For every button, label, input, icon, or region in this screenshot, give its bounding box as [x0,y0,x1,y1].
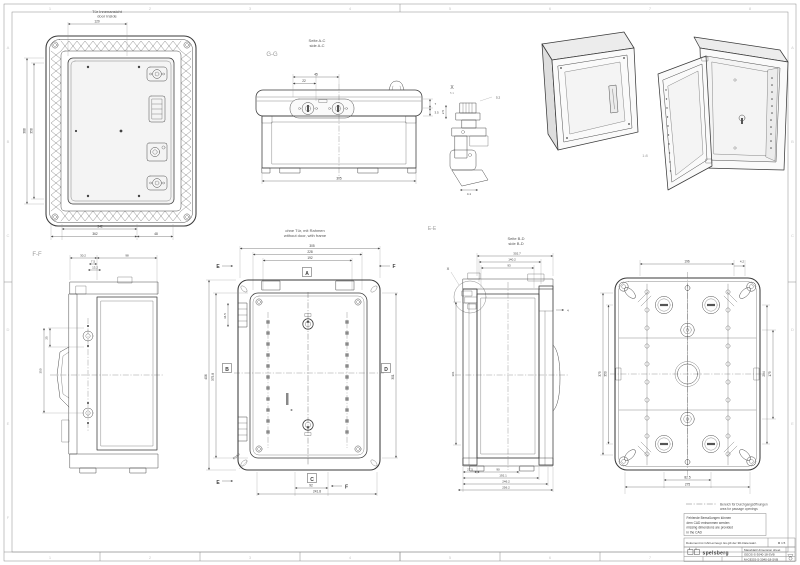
dim-label: 140.2 [508,258,516,262]
dim-label: 48 [154,232,158,236]
dim-label: 228 [307,250,313,254]
iso-scale-label: 1:8 [642,153,648,158]
zone-row: D [7,327,10,332]
dim-label: 388 [23,128,27,134]
title-block: Dokument ist CAD-erzeugt. Es gilt der 3D… [684,538,795,562]
dim-label: 93 [507,264,511,268]
dim-label: 275 [685,483,691,487]
dim-label: 4 [567,309,569,313]
dim-label: 2.5 [441,110,445,115]
zone-col: 4 [349,555,352,560]
view-title-en: side A-C [309,43,324,48]
view-door-inside: Tür Innenansicht door inside 120 388 358… [23,9,197,240]
dim-label: 305 [336,177,342,181]
dim-label: 301 [391,374,395,380]
zone-row: C [7,233,10,238]
marker-d: D [384,367,388,373]
dim-label: 82.5 [684,476,690,480]
doc-note: Dokument ist CAD-erzeugt. Es gilt der 3D… [686,541,757,545]
section-label: F-F [32,252,42,258]
zone-row: B [791,139,794,144]
cut-label-e: E [216,264,220,270]
dim-label: 3.5 [435,111,440,115]
zone-row: A [791,45,794,50]
dim-label: 350 [604,371,608,377]
dim-label: 98 [125,254,129,258]
note-line: Fehlende Bemaßungen können [687,516,732,520]
view-title-en: side B-D [508,241,523,246]
dim-label: 342 [97,225,103,229]
zone-col: 4 [349,6,352,11]
note-box: Fehlende Bemaßungen können dem CAD entno… [684,514,766,536]
dim-label: 301 [451,371,455,376]
cut-label-e: E [216,480,220,486]
legend-text-de: Bereich für Durchgangsöffnungen [720,503,768,507]
cut-label-f: F [392,264,395,270]
dim-label: 192 [307,256,313,260]
drawing-number: M-GEOS-S-3040-18-SVB [744,557,778,561]
dim-label: 196 [684,260,690,264]
view-back: 196 4.2 375 350 254 175 82.5 275 [598,260,776,495]
zone-col: 7 [649,6,652,11]
note-line: dem CAD entnommen werden [687,521,730,525]
detail-scale: 5:1 [450,91,455,95]
zone-row: C [791,233,794,238]
zone-col: 1 [49,6,52,11]
dim-label: 34.5 [223,313,227,319]
view-detail-x: X 5:1 2.5 5.2 4.1 [441,85,501,196]
dim-label: 4.2 [740,260,745,264]
dim-label: 5.2 [496,96,501,100]
legend-text-en: area for passage openings [720,507,758,511]
zone-col: 2 [149,6,152,11]
dim-label: 45 [314,73,318,77]
note-line: in the CAD [687,530,703,534]
dim-label: 192.1 [499,474,507,478]
dim-label: 362 [92,232,98,236]
marker-c: C [310,477,314,483]
view-front-open: ohne Tür, mit Rahmen without door, with … [204,228,398,496]
dim-label: 25 [45,336,49,340]
zone-col: 3 [249,555,252,560]
section-label: G-G [266,52,278,58]
view-title-en: without door, with frame [284,233,327,238]
dim-label: 350 [39,368,43,373]
zone-col: 3 [249,6,252,11]
dim-label: 254 [762,371,766,377]
dim-label: 120 [94,20,100,24]
dim-label: 375 [598,371,602,377]
dim-label: 4.1 [467,192,472,196]
zone-row: E [791,421,794,426]
note-line: missing dimensions are provided [687,526,734,530]
dimension-drawing: 1 2 3 4 5 6 7 8 1 2 3 4 5 6 7 A B C D E … [0,0,800,565]
dim-label: 375.8 [211,373,215,381]
part-number: GEOS-S-3040-18-SVB [744,553,775,557]
dim-label: 30.2 [80,254,86,258]
brand-logo-icon [688,548,700,555]
view-iso-closed [542,32,638,150]
view-section-gg: G-G Seite A-C side A-C 45 22 7 3.5 305 [256,38,439,184]
projection-symbol-icon [788,555,793,561]
dim-label: 27.5 [467,468,473,472]
dim-label: 246.2 [502,480,510,484]
zone-row: E [7,421,10,426]
view-iso-open: 1:8 [642,37,788,190]
marker-b: B [225,367,229,373]
drawing-sheet: 1 2 3 4 5 6 7 8 1 2 3 4 5 6 7 A B C D E … [0,0,800,565]
dim-label: 305 [309,244,315,248]
doc-title: Massblatt/ dimension sheet [744,548,781,552]
dim-label: 175 [768,371,772,377]
dim-label: 358 [30,128,34,134]
detail-callout-x: X [447,266,450,271]
dim-label: 302.7 [513,252,521,256]
zone-col: 6 [549,555,552,560]
zone-col: 1 [49,555,52,560]
brand-name: spelsberg [703,551,729,557]
view-section-ff: F-F 30.2 98 7.5 13.2 25 350 [32,252,164,473]
cut-label-f: F [345,485,348,491]
zone-col: 7 [649,555,652,560]
view-title-en: door inside [97,14,117,19]
dim-label: 92 [309,484,313,488]
zone-col: 5 [449,555,452,560]
dim-label: 90 [496,468,500,472]
zone-row: B [7,139,10,144]
zone-row: D [791,327,794,332]
dim-label: 7 [435,102,437,106]
marker-a: A [305,271,309,277]
zone-row: A [7,45,10,50]
zone-col: 2 [149,555,152,560]
dim-label: 406 [204,374,208,380]
scale-label: M 1:5 [778,541,786,545]
legend-note: Bereich für Durchgangsöffnungen area for… [686,503,768,512]
zone-col: 5 [449,6,452,11]
dim-label: 241.8 [313,490,321,494]
dim-label: 13.2 [92,266,98,270]
section-label: E-E [428,226,437,232]
dim-label: 7.5 [91,260,96,264]
zone-col: 6 [549,6,552,11]
dim-label: 256.2 [502,486,510,490]
zone-row: F [7,515,10,520]
dim-label: 22 [302,79,306,83]
view-section-ee: E-E Seite B-D side B-D 302.7 140.2 93 X … [428,226,569,492]
radius-label: R14.5 [232,452,241,460]
zone-col: 8 [749,6,752,11]
